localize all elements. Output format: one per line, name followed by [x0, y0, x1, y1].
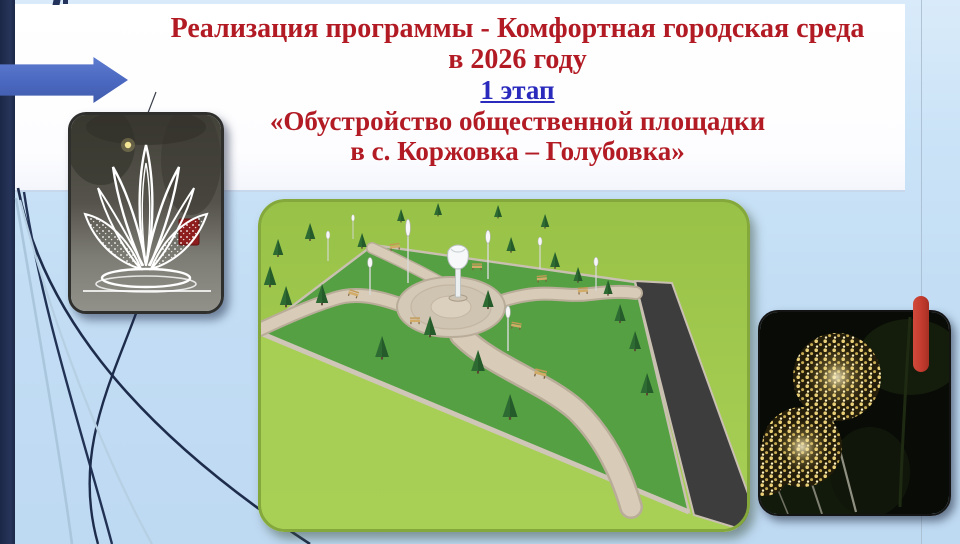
- title-line-1: Реализация программы - Комфортная городс…: [130, 13, 905, 44]
- winter-light-sculpture-photo: [68, 112, 224, 314]
- presentation-slide: Реализация программы - Комфортная городс…: [0, 0, 960, 544]
- top-corner-mark: [63, 0, 68, 4]
- title-line-2: в 2026 году: [130, 44, 905, 75]
- light-sculpture-illustration: [71, 115, 221, 311]
- subtitle-line-2: в с. Коржовка – Голубовка»: [130, 136, 905, 166]
- park-plaza-3d-render: [258, 199, 750, 532]
- park-plan-illustration: [258, 199, 750, 532]
- stage-link[interactable]: 1 этап: [480, 75, 554, 106]
- title-block: Реализация программы - Комфортная городс…: [130, 4, 905, 166]
- subtitle-line-1: «Обустройство общественной площадки: [130, 106, 905, 136]
- top-corner-mark: [52, 0, 60, 5]
- red-marker-bar: [913, 296, 929, 372]
